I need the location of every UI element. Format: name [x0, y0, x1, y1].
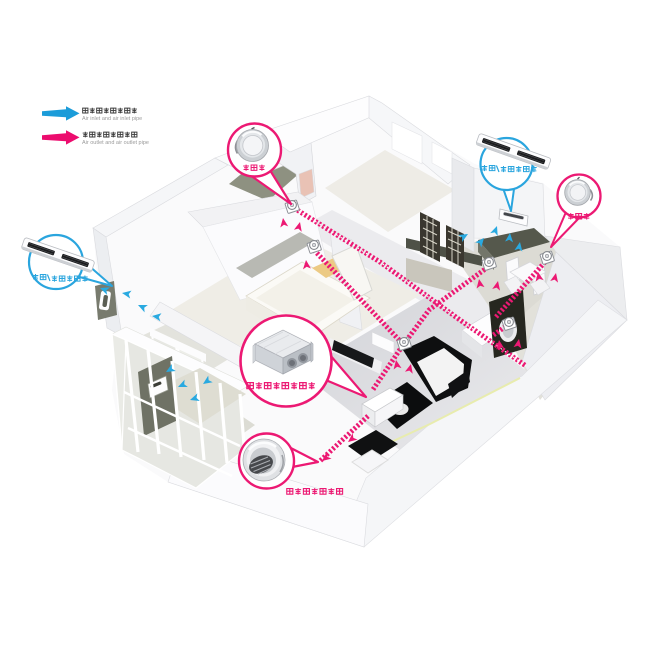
- svg-text:Air outlet and air outlet pipe: Air outlet and air outlet pipe: [82, 140, 149, 146]
- svg-text:Air inlet and air inlet pipe: Air inlet and air inlet pipe: [82, 116, 142, 122]
